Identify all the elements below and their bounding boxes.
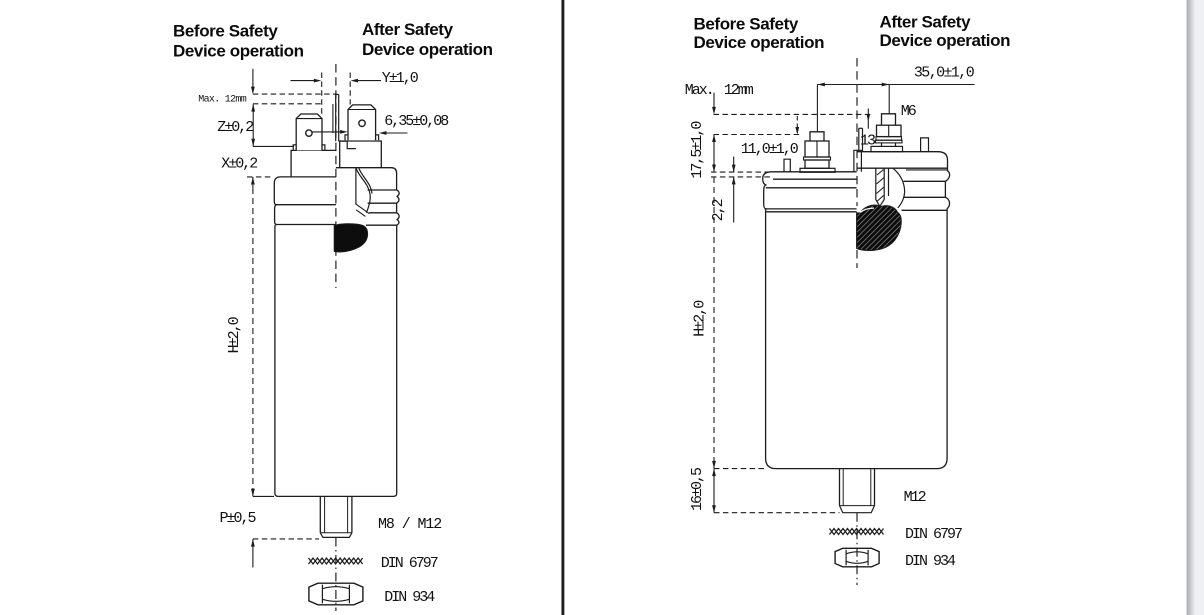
svg-text:Before Safety: Before Safety	[173, 22, 278, 41]
svg-text:DIN 934: DIN 934	[384, 589, 435, 606]
svg-text:13: 13	[860, 132, 876, 149]
svg-text:Z±0,2: Z±0,2	[217, 119, 253, 136]
svg-text:After Safety: After Safety	[362, 20, 454, 39]
svg-text:Max. 12mm: Max. 12mm	[198, 95, 246, 106]
svg-text:17,5±1,0: 17,5±1,0	[689, 121, 706, 179]
svg-text:DIN 934: DIN 934	[905, 553, 956, 570]
svg-text:Y±1,0: Y±1,0	[382, 70, 419, 87]
svg-text:After Safety: After Safety	[880, 13, 972, 32]
svg-text:Before Safety: Before Safety	[694, 15, 799, 34]
svg-text:M8 / M12: M8 / M12	[378, 516, 441, 533]
svg-text:Device operation: Device operation	[880, 31, 1011, 50]
svg-text:M12: M12	[904, 489, 926, 506]
svg-text:11,0±1,0: 11,0±1,0	[741, 141, 799, 158]
svg-text:X±0,2: X±0,2	[221, 155, 257, 172]
svg-text:Device operation: Device operation	[173, 41, 304, 60]
svg-text:Max.: Max.	[685, 82, 713, 99]
svg-text:2,2: 2,2	[710, 199, 727, 221]
svg-text:DIN 6797: DIN 6797	[905, 526, 962, 543]
svg-text:12mm: 12mm	[724, 82, 754, 99]
svg-text:H±2,0: H±2,0	[691, 300, 708, 337]
svg-text:35,0±1,0: 35,0±1,0	[914, 65, 975, 82]
svg-text:Device operation: Device operation	[362, 40, 493, 59]
svg-text:6,35±0,08: 6,35±0,08	[384, 113, 449, 130]
svg-text:16±0,5: 16±0,5	[689, 467, 706, 511]
svg-text:H±2,0: H±2,0	[226, 316, 243, 353]
svg-text:M6: M6	[901, 103, 917, 120]
svg-text:DIN 6797: DIN 6797	[381, 555, 438, 572]
svg-text:P±0,5: P±0,5	[220, 510, 257, 527]
svg-text:Device operation: Device operation	[694, 33, 825, 52]
